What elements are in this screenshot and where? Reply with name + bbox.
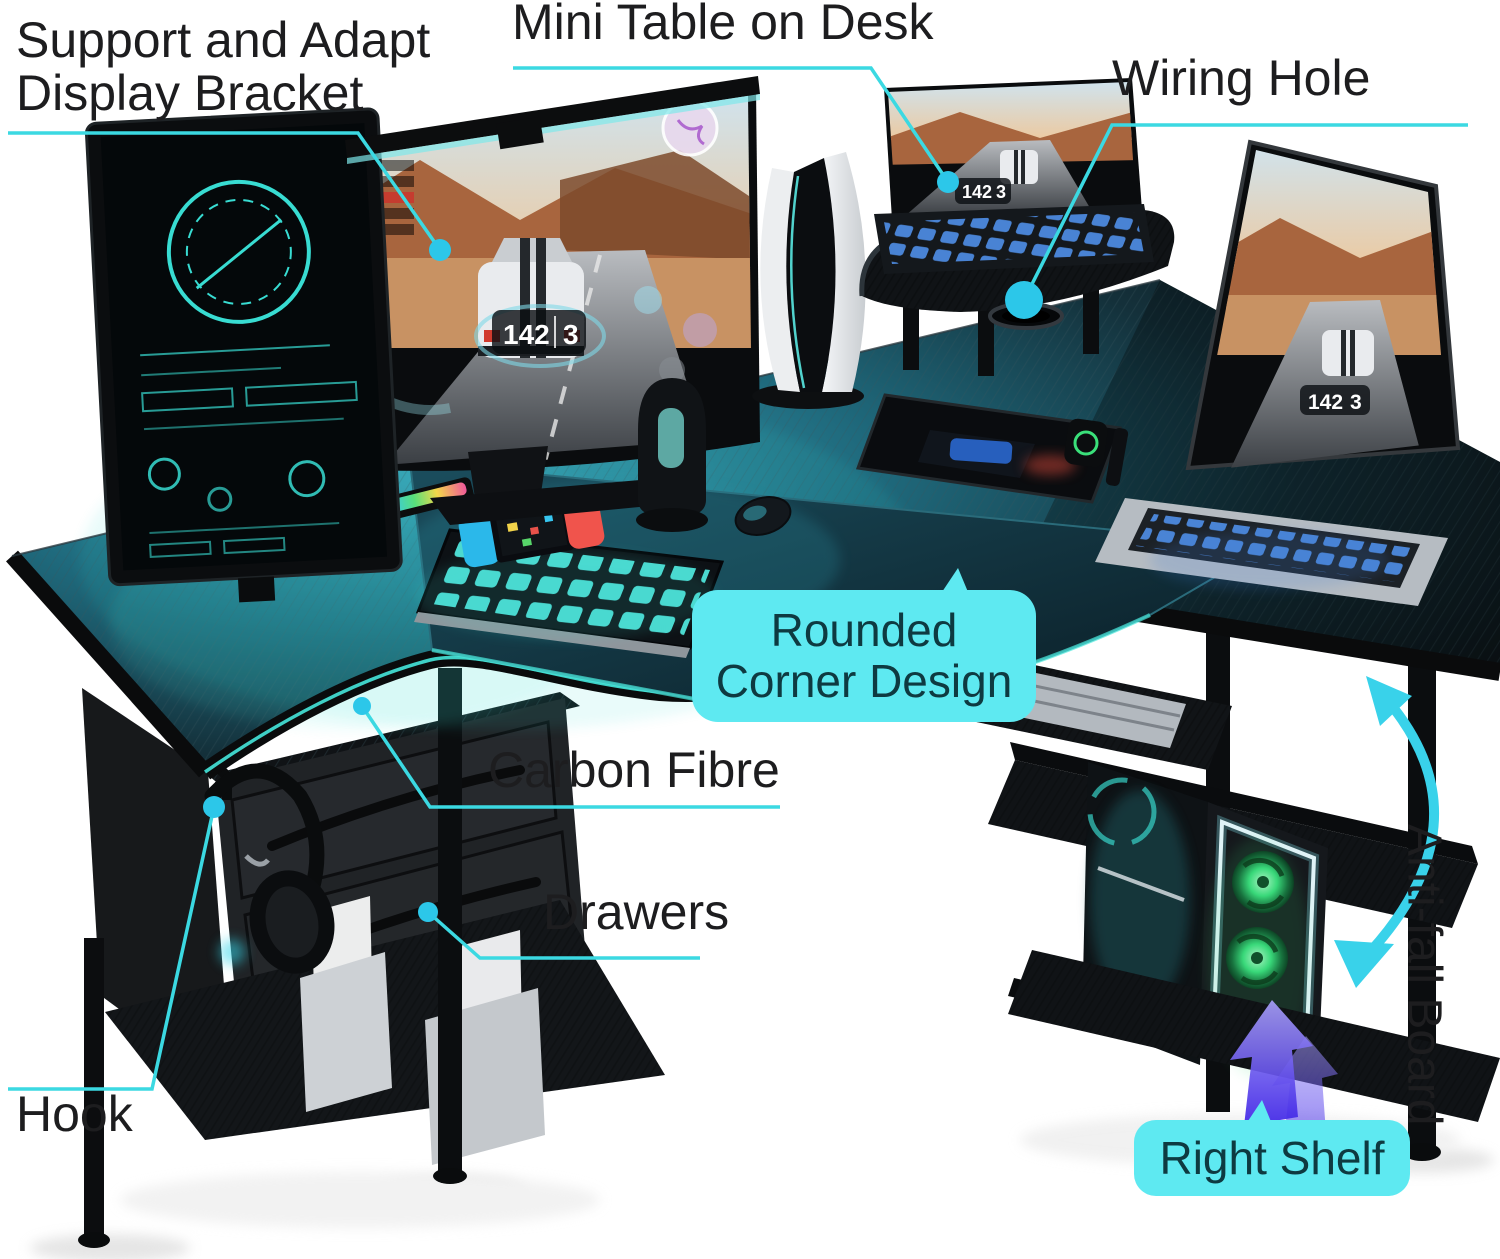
riser-hud-gear: 3: [996, 182, 1006, 202]
hud-speed: 142: [503, 319, 550, 350]
label-wiring-hole: Wiring Hole: [1112, 52, 1370, 105]
callout-rounded-text: Rounded Corner Design: [716, 605, 1013, 706]
callout-tail: [1246, 1100, 1272, 1124]
label-display-bracket: Support and Adapt Display Bracket: [16, 14, 430, 119]
label-drawers: Drawers: [543, 886, 729, 939]
callout-rounded-corner: Rounded Corner Design: [692, 590, 1036, 722]
callout-right-shelf: Right Shelf: [1134, 1120, 1410, 1196]
laptop-hud-gear: 3: [1350, 391, 1362, 414]
dot-drawers: [418, 902, 438, 922]
tablet-with-keyboard: 142 3: [874, 78, 1154, 274]
dot-mini-table: [937, 171, 959, 193]
product-annotation-image: 3 142 3: [0, 0, 1500, 1259]
dot-hook: [203, 796, 225, 818]
label-mini-table: Mini Table on Desk: [512, 0, 934, 49]
aroma-lamp: [636, 378, 708, 532]
label-carbon-fibre: Carbon Fibre: [488, 744, 780, 797]
game-console: [752, 152, 866, 409]
riser-hud-speed: 142: [962, 182, 992, 202]
portrait-monitor: [86, 108, 403, 609]
dot-carbon-fibre: [353, 697, 371, 715]
callout-shelf-text: Right Shelf: [1159, 1133, 1384, 1184]
file-organizer-1: [300, 952, 392, 1112]
hud-gear: 3: [563, 319, 579, 350]
dot-wiring-hole: [1005, 281, 1043, 319]
laptop-hud-speed: 142: [1308, 391, 1343, 414]
callout-tail: [942, 568, 968, 592]
front-leg: [438, 668, 462, 1173]
label-hook: Hook: [16, 1088, 133, 1141]
dot-display-bracket: [429, 239, 451, 261]
